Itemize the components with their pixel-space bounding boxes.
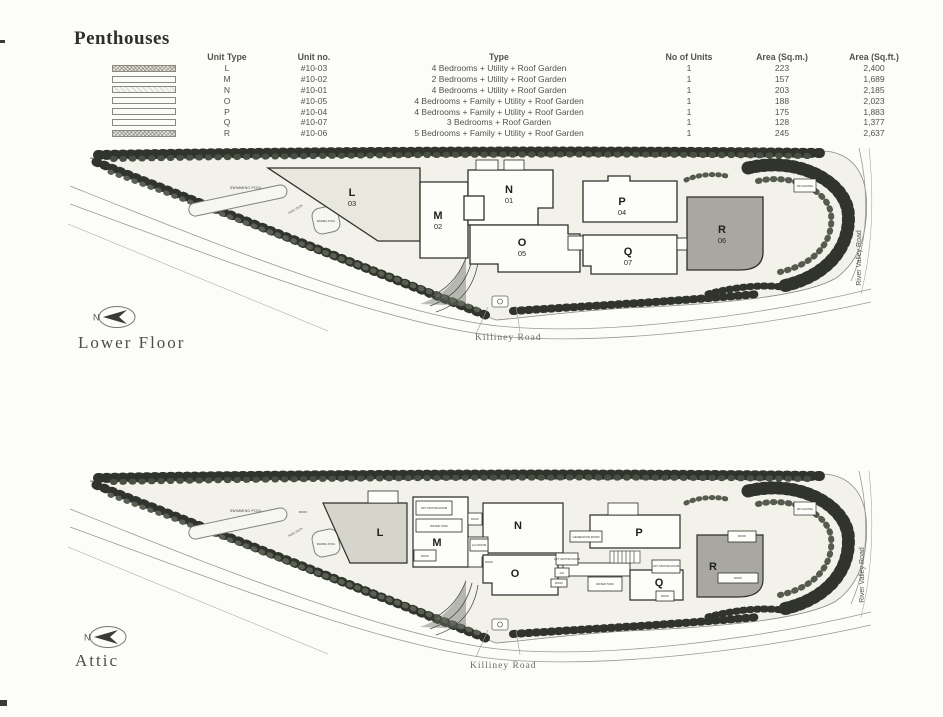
roof-strip-P [608,503,638,515]
cell-type: 3 Bedrooms + Roof Garden [356,117,642,127]
lower-floor-plan: SWIMMING POOL POOL DECK WADING POOL BIN … [68,146,873,361]
unit-label-M: M [433,210,442,222]
unit-num-O: 05 [518,249,526,258]
cell-unit-type: Q [182,117,272,127]
unit-label-Q: Q [655,577,664,589]
legend-swatch-Q [112,119,182,126]
compass-n: N [84,633,91,643]
unit-label-O: O [518,237,527,249]
room-label-ac-room: A/C ROOM [472,543,487,547]
compass-arrow [103,310,127,324]
room-label-generator: GENERATOR ROOM [573,535,601,539]
road-label-river-valley: River Valley Road [856,230,863,286]
building-P [583,176,677,222]
unit-label-R: R [709,561,717,573]
cell-sqft: 1,377 [828,117,920,127]
room-label-lift-motor-1: LIFT MOTOR ROOM [421,506,448,510]
cell-unit-type: P [182,107,272,117]
unit-table: Unit Type Unit no. Type No of Units Area… [112,50,920,139]
col-header-unit-no: Unit no. [272,52,356,62]
cell-sqm: 203 [736,85,828,95]
room-label-roof-core: ROOF [485,560,493,564]
corridor-2 [677,238,687,250]
legend-swatch-N [112,86,182,93]
unit-label-Q: Q [624,246,633,258]
room-label-ac: A/C [560,571,565,575]
cell-sqm: 245 [736,128,828,138]
roof-strip-L [368,491,398,503]
cell-units: 1 [642,96,736,106]
wading-pool-label: WADING POOL [317,542,336,546]
room-label-roof-n: ROOF [471,517,479,521]
compass: N [93,307,135,328]
room-label-roof-r1: ROOF [738,534,746,538]
col-header-area-sqft: Area (Sq.ft.) [828,52,920,62]
cell-type: 5 Bedrooms + Family + Utility + Roof Gar… [356,128,642,138]
cell-unit-no: #10-04 [272,107,356,117]
cell-sqft: 1,883 [828,107,920,117]
cell-type: 4 Bedrooms + Family + Utility + Roof Gar… [356,96,642,106]
scan-artifact [0,40,5,43]
unit-label-P: P [635,527,642,539]
building-O-attic [483,555,558,595]
room-label-roof-o: ROOF [555,581,563,585]
cell-sqft: 2,023 [828,96,920,106]
scan-artifact [0,700,7,706]
canopy-1 [476,160,498,170]
cell-sqft: 2,400 [828,63,920,73]
unit-num-P: 04 [618,208,626,217]
unit-label-L: L [377,527,384,539]
corridor-1 [568,236,583,250]
cell-unit-type: L [182,63,272,73]
legend-swatch-P [112,108,182,115]
room-label-roof-r2: ROOF [734,576,742,580]
road-label-river-valley: River Valley Road [859,547,866,603]
unit-label-O: O [511,568,520,580]
room-label-water-tank-1: WATER TANK [430,524,448,528]
cell-units: 1 [642,74,736,84]
canopy-2 [504,160,524,170]
unit-label-N: N [514,520,522,532]
unit-num-N: 01 [505,196,513,205]
road-label-killiney: Killiney Road [470,661,537,671]
cell-units: 1 [642,128,736,138]
compass-n: N [93,313,100,323]
lift-core [464,196,484,220]
cell-unit-type: M [182,74,272,84]
cell-sqft: 2,185 [828,85,920,95]
compass: N [84,627,126,648]
attic-plan: SWIMMING POOL POOL DECK WADING POOL [68,469,873,684]
cell-unit-no: #10-03 [272,63,356,73]
floor-label: Attic [75,651,119,670]
room-label-roof-q: ROOF [661,594,669,598]
unit-label-P: P [618,196,625,208]
swimming-pool-label: SWIMMING POOL [230,509,262,513]
col-header-type: Type [356,52,642,62]
unit-label-L: L [349,187,356,199]
legend-swatch-M [112,76,182,83]
cell-unit-type: N [182,85,272,95]
bin-centre-label: BIN CENTRE [797,184,813,188]
unit-num-M: 02 [434,222,442,231]
building-M [420,182,468,258]
room-label-lift-motor-3: LIFT MOTOR ROOM [653,564,680,568]
room-label-lift-motor-2: LIFT MOTOR ROOM [554,557,581,561]
cell-sqm: 157 [736,74,828,84]
stairs-hatch [610,551,640,563]
cell-unit-no: #10-07 [272,117,356,127]
unit-num-Q: 07 [624,258,632,267]
cell-type: 4 Bedrooms + Utility + Roof Garden [356,63,642,73]
cell-unit-no: #10-01 [272,85,356,95]
cell-unit-no: #10-06 [272,128,356,138]
brochure-page: Penthouses Unit Type Unit no. Type No of… [0,0,943,717]
unit-label-R: R [718,224,726,236]
cell-units: 1 [642,85,736,95]
unit-label-M: M [432,537,441,549]
cell-unit-no: #10-05 [272,96,356,106]
legend-swatch-O [112,97,182,104]
room-label-roof-m: ROOF [421,554,429,558]
cell-type: 4 Bedrooms + Utility + Roof Garden [356,85,642,95]
cell-sqm: 223 [736,63,828,73]
cell-units: 1 [642,117,736,127]
building-N-attic [483,503,563,553]
cell-type: 4 Bedrooms + Family + Utility + Roof Gar… [356,107,642,117]
cell-sqm: 188 [736,96,828,106]
legend-swatch-R [112,130,182,137]
col-header-unit-type: Unit Type [182,52,272,62]
cell-sqm: 128 [736,117,828,127]
swimming-pool-label: SWIMMING POOL [230,186,262,190]
cell-sqft: 1,689 [828,74,920,84]
wading-pool-label: WADING POOL [317,219,336,223]
cell-unit-type: O [182,96,272,106]
room-label-roof-terrace: ROOF [299,510,307,514]
cell-sqft: 2,637 [828,128,920,138]
bin-centre-label: BIN CENTRE [797,507,813,511]
unit-num-R: 06 [718,236,726,245]
cell-sqm: 175 [736,107,828,117]
building-R-attic [697,535,763,597]
cell-units: 1 [642,107,736,117]
page-title: Penthouses [74,28,170,50]
cell-unit-no: #10-02 [272,74,356,84]
road-label-killiney: Killiney Road [475,333,542,343]
cell-type: 2 Bedrooms + Utility + Roof Garden [356,74,642,84]
unit-label-N: N [505,184,513,196]
room-label-water-tank-2: WATER TANK [596,582,614,586]
compass-arrow [94,630,118,644]
cell-unit-type: R [182,128,272,138]
floor-label: Lower Floor [78,333,185,352]
col-header-no-of-units: No of Units [642,52,736,62]
col-header-area-sqm: Area (Sq.m.) [736,52,828,62]
unit-num-L: 03 [348,199,356,208]
cell-units: 1 [642,63,736,73]
legend-swatch-L [112,65,182,72]
